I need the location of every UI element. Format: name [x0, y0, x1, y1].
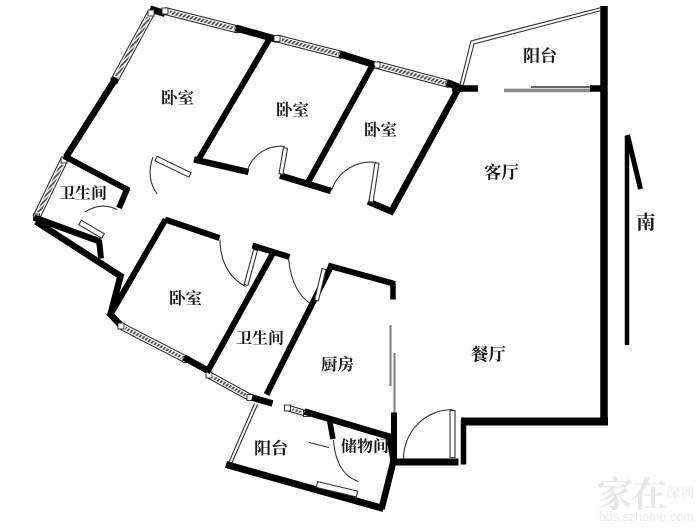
svg-text:bbs.szhome.com: bbs.szhome.com — [599, 510, 693, 524]
